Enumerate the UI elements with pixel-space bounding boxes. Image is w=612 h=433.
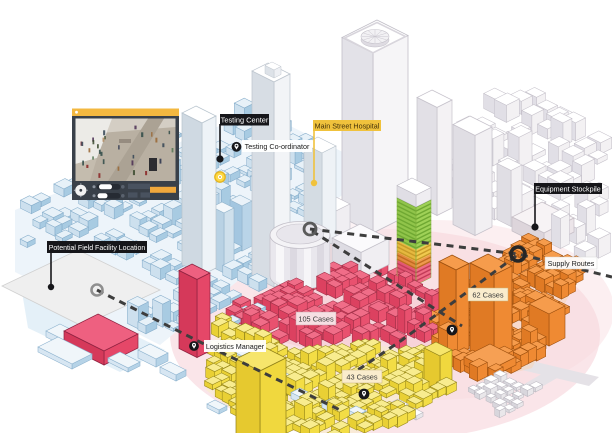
svg-text:Testing Co-ordinator: Testing Co-ordinator [245,142,310,151]
svg-text:Potential Field Facility Locat: Potential Field Facility Location [49,245,146,252]
svg-text:Supply Routes: Supply Routes [548,259,595,268]
svg-text:105 Cases: 105 Cases [298,314,334,323]
svg-text:43 Cases: 43 Cases [346,372,378,381]
svg-text:Testing Center: Testing Center [221,115,269,124]
svg-text:62 Cases: 62 Cases [472,290,504,299]
svg-text:Logistics Manager: Logistics Manager [206,342,265,351]
svg-text:Equipment Stockpile: Equipment Stockpile [535,184,601,193]
svg-text:Main Street Hospital: Main Street Hospital [315,121,380,130]
